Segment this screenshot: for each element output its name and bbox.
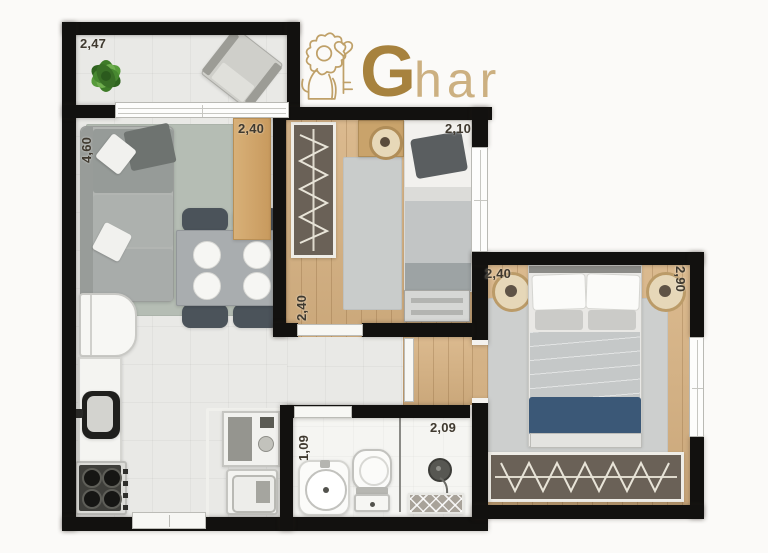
washer-display bbox=[260, 417, 274, 428]
washing-machine bbox=[222, 411, 280, 467]
brand-initial: G bbox=[360, 43, 414, 102]
wall-bedroom1-bottom-a bbox=[273, 323, 298, 337]
burner bbox=[82, 489, 102, 509]
floor-plan-canvas: G har bbox=[0, 0, 768, 553]
balcony-sliding-door bbox=[115, 102, 289, 118]
fridge bbox=[79, 293, 137, 357]
laundry-tub bbox=[226, 469, 278, 515]
accent-pillow bbox=[535, 310, 583, 330]
dim-bathroom-width: 1,09 bbox=[296, 435, 311, 461]
brand-logo: G har bbox=[296, 22, 501, 102]
window-mullion bbox=[692, 388, 703, 389]
drawer-rail bbox=[411, 298, 463, 303]
bed-blanket-dark bbox=[405, 263, 471, 291]
bed-blanket bbox=[405, 201, 471, 263]
dim-living-length: 4,60 bbox=[79, 137, 94, 163]
wall-bedroom1-right-upper bbox=[472, 107, 488, 147]
duvet bbox=[530, 332, 640, 398]
trundle-drawer bbox=[404, 290, 470, 322]
dim-balcony-width: 2,47 bbox=[80, 36, 106, 51]
entry-door-seam bbox=[169, 515, 170, 527]
wall-bedroom1-bottom-b bbox=[362, 323, 472, 337]
dim-bedroom2-length: 2,90 bbox=[673, 266, 688, 292]
tub-washboard bbox=[256, 481, 270, 503]
wardrobe-bedroom2 bbox=[488, 452, 684, 502]
drawer-rail bbox=[411, 310, 463, 315]
sink-drain bbox=[323, 487, 329, 493]
bed-pillow bbox=[410, 131, 468, 179]
dim-bedroom2-width: 2,40 bbox=[485, 266, 511, 281]
dining-table bbox=[176, 230, 284, 306]
wall-bedroom2-top bbox=[472, 252, 704, 265]
bed-bench bbox=[530, 433, 642, 448]
wall-bathroom-right bbox=[472, 400, 488, 517]
bedroom2-door-jamb bbox=[472, 398, 488, 403]
bed-pillow bbox=[585, 273, 640, 311]
sheet-fold bbox=[405, 187, 471, 201]
wall-bedroom1-left bbox=[273, 107, 286, 337]
plate bbox=[243, 272, 271, 300]
dim-sideboard-width: 2,40 bbox=[238, 121, 264, 136]
pouf-center bbox=[659, 285, 671, 297]
washer-lid bbox=[228, 417, 252, 461]
burner bbox=[102, 468, 122, 488]
kitchen-sink bbox=[82, 391, 120, 439]
bath-mat bbox=[408, 493, 464, 514]
wall-balcony-top bbox=[62, 22, 300, 35]
shower-head-center bbox=[436, 466, 441, 471]
bedroom1-rug bbox=[343, 157, 402, 310]
bedroom1-window bbox=[471, 147, 488, 252]
wall-bottom bbox=[62, 517, 488, 531]
bed-pillow bbox=[531, 273, 586, 311]
stove-knob bbox=[123, 493, 128, 498]
toilet-seat bbox=[359, 456, 389, 486]
circulation-floor bbox=[287, 337, 403, 405]
dining-chair bbox=[182, 304, 228, 328]
accent-pillow bbox=[588, 310, 636, 330]
hanger-rail-icon bbox=[294, 125, 333, 255]
dining-chair bbox=[182, 208, 228, 232]
bedroom1-door bbox=[297, 324, 363, 336]
single-bed bbox=[404, 120, 472, 292]
window-mullion bbox=[474, 200, 487, 201]
bathroom-sink bbox=[305, 469, 347, 511]
washer-dial bbox=[258, 436, 274, 452]
wall-bedroom2-bottom bbox=[472, 505, 704, 519]
headboard bbox=[529, 266, 641, 273]
stove-knob bbox=[123, 481, 128, 486]
sofa bbox=[80, 126, 174, 302]
round-stool bbox=[369, 126, 403, 160]
hallway-door-leaf bbox=[404, 338, 414, 402]
lion-key-icon bbox=[296, 28, 358, 102]
wall-left bbox=[62, 22, 76, 531]
plant-icon bbox=[82, 48, 130, 104]
plate bbox=[193, 272, 221, 300]
plate bbox=[243, 241, 271, 269]
entry-door bbox=[132, 512, 206, 529]
wardrobe-bedroom1 bbox=[291, 122, 336, 258]
dim-bedroom1-length: 2,40 bbox=[294, 295, 309, 321]
hanger-rail-icon bbox=[491, 455, 681, 499]
brand-name-rest: har bbox=[414, 59, 501, 102]
fridge-door-seam bbox=[90, 295, 92, 355]
burner bbox=[82, 468, 102, 488]
plate bbox=[193, 241, 221, 269]
dim-bedroom1-width: 2,10 bbox=[445, 121, 471, 136]
sliding-door-divider bbox=[202, 105, 203, 117]
burner bbox=[102, 489, 122, 509]
bathroom-door bbox=[294, 406, 352, 418]
pouf-center bbox=[505, 285, 517, 297]
stove-knob bbox=[123, 505, 128, 510]
bathroom-vanity bbox=[298, 460, 350, 516]
wall-balcony-stub bbox=[62, 105, 118, 118]
stove-knob bbox=[123, 469, 128, 474]
wall-laundry-divider bbox=[280, 405, 293, 531]
sideboard bbox=[233, 118, 271, 240]
foot-blanket bbox=[529, 397, 641, 435]
sink-faucet bbox=[320, 460, 330, 468]
stool-center bbox=[380, 137, 390, 147]
bedroom2-window bbox=[689, 337, 704, 437]
stove bbox=[75, 461, 127, 515]
toilet-bowl bbox=[352, 449, 392, 491]
dim-bathroom-length: 2,09 bbox=[430, 420, 456, 435]
toilet-tank bbox=[354, 494, 390, 512]
sink-basin bbox=[87, 396, 113, 432]
flush-button bbox=[370, 502, 375, 507]
shower-partition bbox=[399, 418, 401, 512]
wall-bedroom2-right-upper bbox=[690, 252, 704, 337]
bedroom2-door-jamb bbox=[472, 340, 488, 345]
double-bed bbox=[528, 265, 642, 447]
potted-plant bbox=[82, 48, 130, 109]
